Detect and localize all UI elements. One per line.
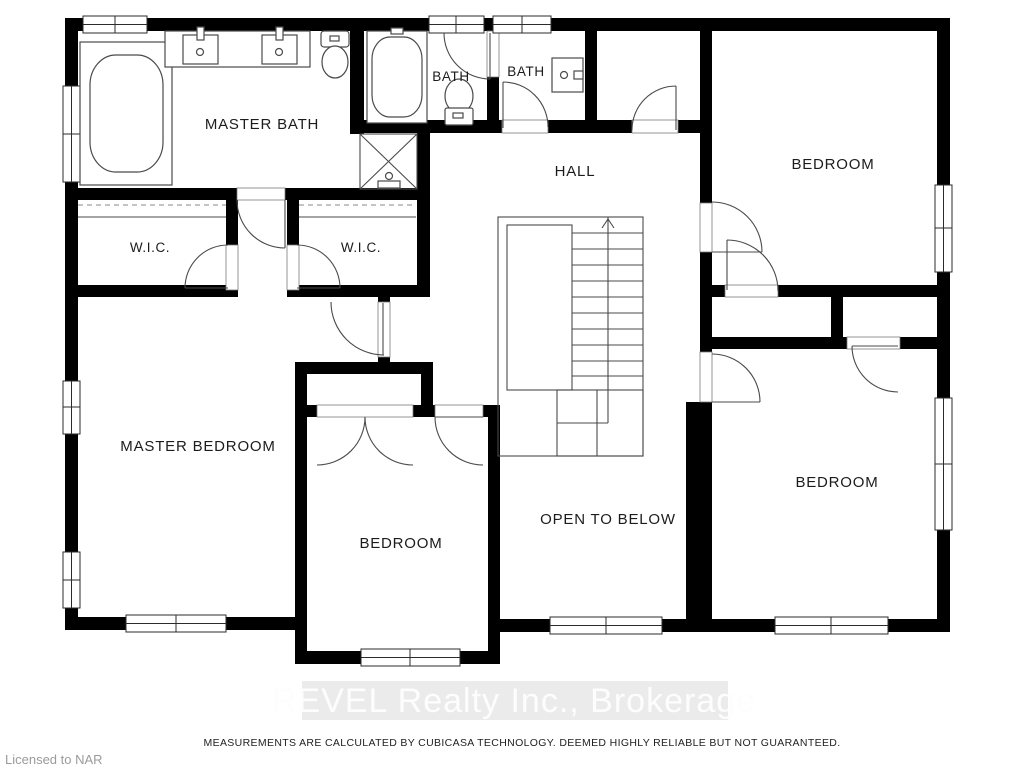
window <box>126 615 226 632</box>
bathtub-icon <box>80 42 172 185</box>
bathtub-icon <box>367 28 427 123</box>
sink-icon <box>552 58 583 92</box>
room-label-bedroom-bottom-right: BEDROOM <box>795 474 878 491</box>
watermark: REVEL Realty Inc., Brokerage <box>272 681 756 720</box>
window <box>63 381 80 434</box>
door-swing <box>712 202 762 252</box>
watermark-text: REVEL Realty Inc., Brokerage <box>272 682 756 720</box>
room-label-bedroom-top-right: BEDROOM <box>791 156 874 173</box>
floor-plan-drawing: MASTER BATH BATH BATH HALL BEDROOM W.I.C… <box>0 0 1024 768</box>
license-text: Licensed to NAR <box>5 752 103 767</box>
room-label-bedroom-middle: BEDROOM <box>359 535 442 552</box>
door-swing <box>185 245 228 288</box>
door-swing <box>237 200 285 248</box>
floor-plan-page: MASTER BATH BATH BATH HALL BEDROOM W.I.C… <box>0 0 1024 768</box>
window <box>63 552 80 608</box>
window <box>429 16 484 33</box>
window <box>550 617 662 634</box>
double-vanity-icon <box>165 27 310 67</box>
window <box>493 16 551 33</box>
window <box>935 185 952 272</box>
toilet-icon <box>321 31 349 78</box>
door-swing <box>852 346 898 392</box>
staircase <box>498 217 643 456</box>
door-swing <box>331 302 384 355</box>
door-swing <box>727 240 778 291</box>
room-label-bath-1: BATH <box>432 69 469 84</box>
shower-icon <box>360 134 417 189</box>
door-swing <box>317 417 413 465</box>
disclaimer-text: MEASUREMENTS ARE CALCULATED BY CUBICASA … <box>204 737 841 749</box>
window <box>775 617 888 634</box>
window <box>935 398 952 530</box>
room-label-bath-2: BATH <box>507 64 544 79</box>
window <box>361 649 460 666</box>
room-label-wic-right: W.I.C. <box>341 240 381 255</box>
window <box>63 86 80 182</box>
window <box>83 16 147 33</box>
closet-shelf-lines <box>78 205 416 217</box>
toilet-icon <box>445 79 473 125</box>
room-label-master-bath: MASTER BATH <box>205 116 319 133</box>
room-label-hall: HALL <box>555 163 596 180</box>
room-label-wic-left: W.I.C. <box>130 240 170 255</box>
door-swing <box>712 354 760 402</box>
room-label-open-to-below: OPEN TO BELOW <box>540 511 676 528</box>
room-label-master-bedroom: MASTER BEDROOM <box>120 438 275 455</box>
door-swing <box>297 245 340 288</box>
door-swing <box>435 417 483 465</box>
